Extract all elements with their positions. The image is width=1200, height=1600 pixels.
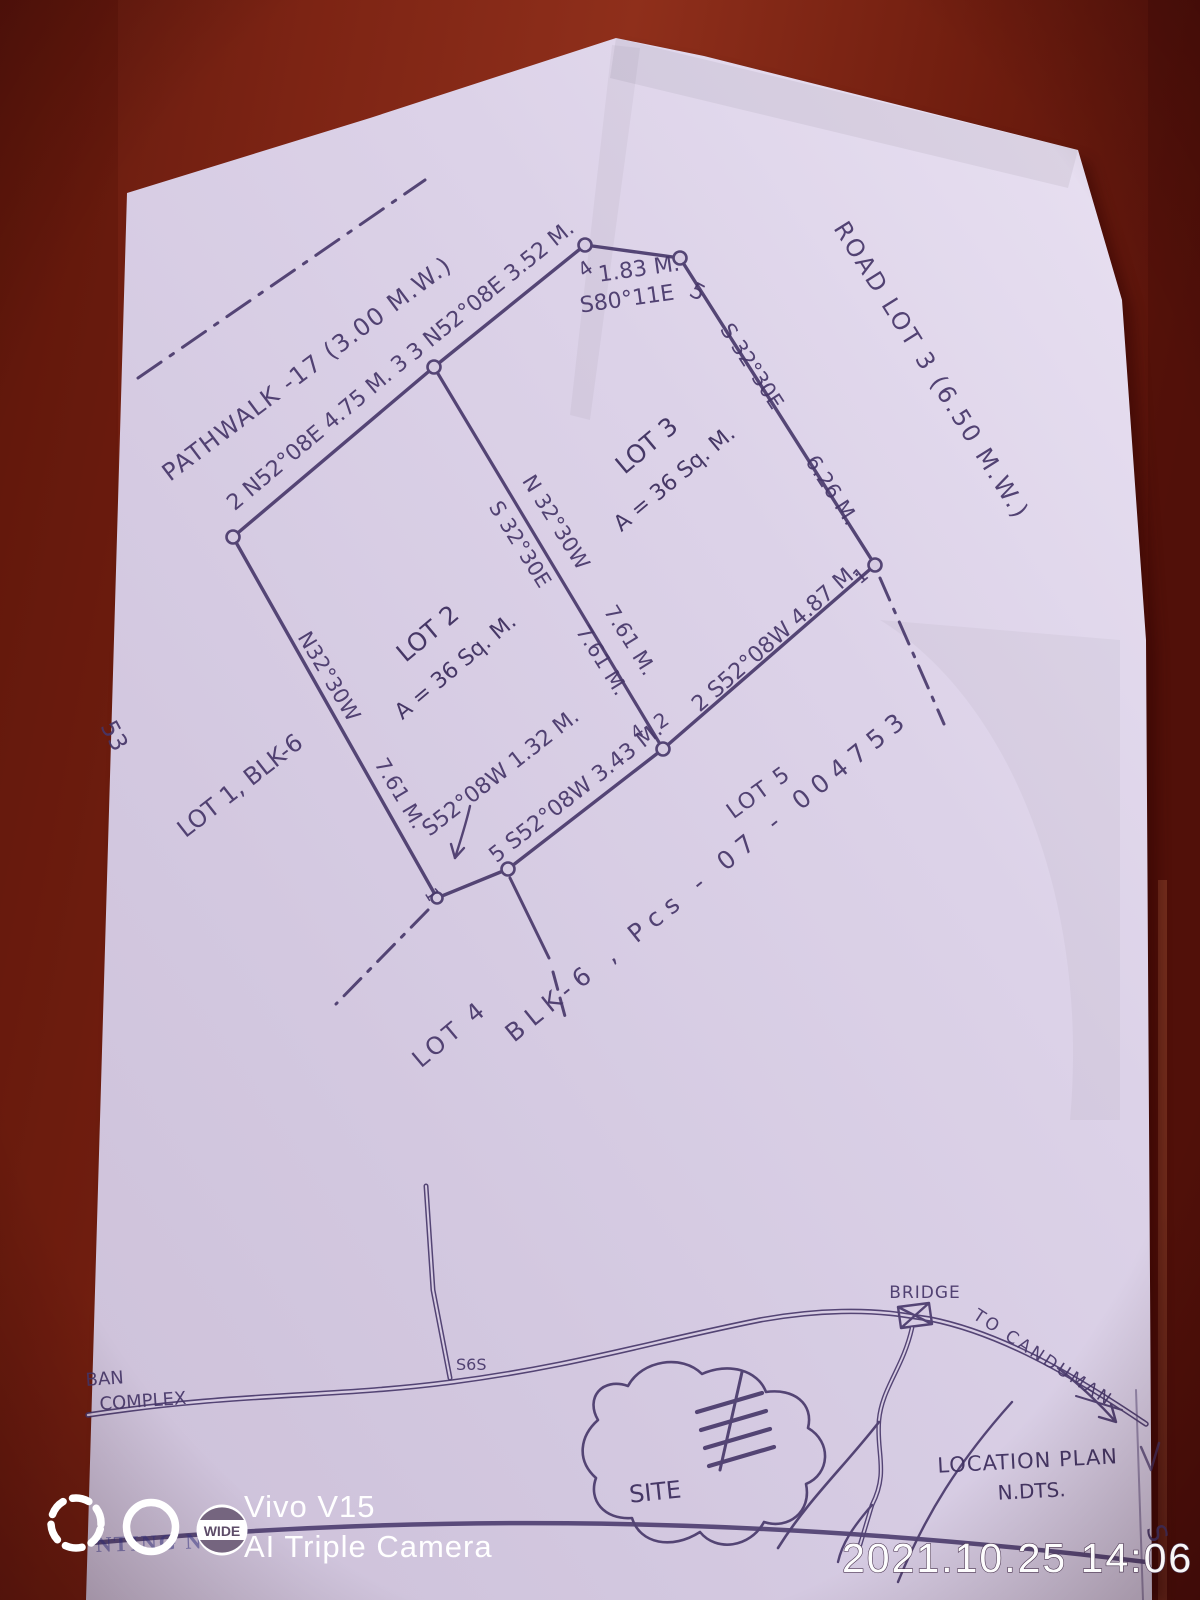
watermark-camera-mode: AI Triple Camera	[244, 1529, 493, 1564]
watermark-device: Vivo V15	[244, 1489, 376, 1524]
photo-of-survey-sketch: PATHWALK -17 (3.00 M.W.) ROAD LOT 3 (6.5…	[0, 0, 1200, 1600]
watermark-timestamp: 2021.10.25 14:06	[842, 1535, 1193, 1581]
photo-vignette	[0, 0, 1200, 1600]
wide-badge-label: WIDE	[204, 1523, 241, 1539]
wide-badge-icon: WIDE	[197, 1505, 248, 1556]
